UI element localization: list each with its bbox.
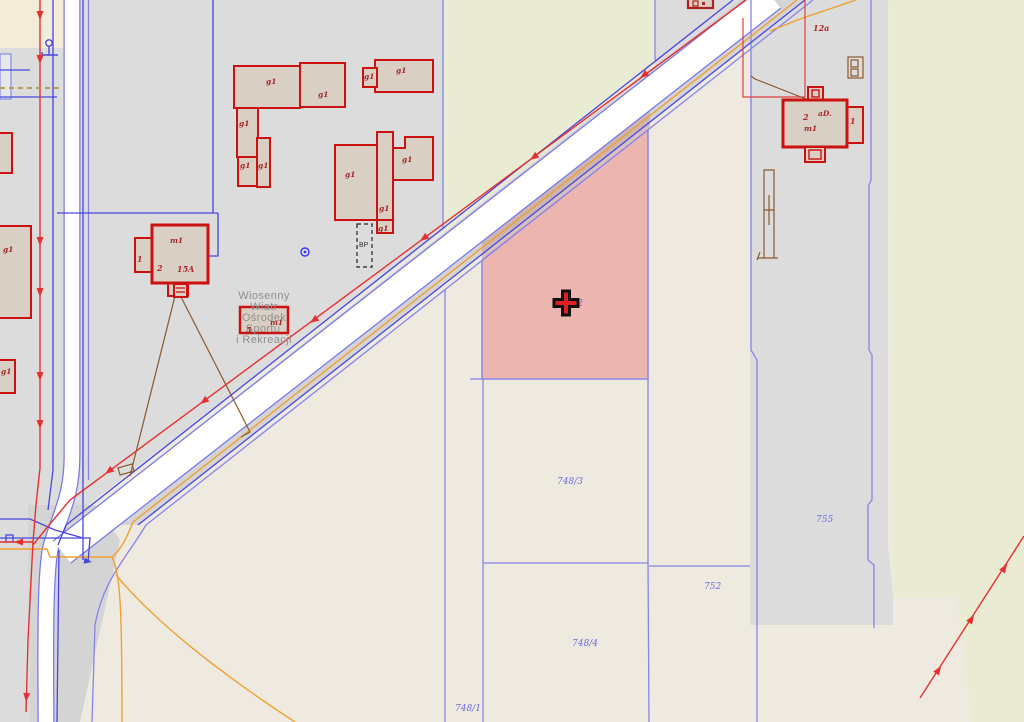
house-number: 1	[137, 254, 143, 264]
building-detail	[809, 150, 821, 159]
building-label: m1	[270, 318, 283, 327]
parcel-label: 748/3	[557, 477, 583, 487]
building-label: g1	[402, 155, 412, 164]
building[interactable]	[0, 226, 31, 318]
building-main[interactable]	[152, 225, 208, 283]
building-label: g1	[318, 90, 328, 99]
parcel-label: 748/1	[455, 704, 481, 714]
building-label: g1	[364, 72, 374, 81]
building-label: g1	[266, 77, 276, 86]
house-number: 5	[246, 325, 252, 335]
cadastral-map-view[interactable]: Wiosenny Wiatr Ośrodek Sportu i Rekreacj…	[0, 0, 1024, 722]
building[interactable]	[335, 145, 378, 220]
building-label: g1	[239, 119, 249, 128]
house-number: 12a	[813, 23, 829, 33]
parcel-label: 752	[704, 582, 721, 592]
house-number: 15A	[177, 264, 194, 274]
house-number: 1	[850, 116, 856, 126]
small-parcel-left-edge	[0, 54, 11, 99]
building[interactable]	[375, 60, 433, 92]
building[interactable]	[0, 360, 15, 393]
house-number: 2	[156, 263, 163, 273]
house-number: 2	[802, 112, 809, 122]
building-outbuilding[interactable]	[174, 284, 187, 297]
building[interactable]	[234, 66, 300, 108]
building-top-edge[interactable]	[688, 0, 713, 8]
building-label: g1	[3, 245, 13, 254]
building-label: g1	[258, 161, 268, 170]
poi-line: i Rekreacji	[236, 334, 292, 346]
building-label: m1	[804, 124, 817, 133]
building-label: BP	[359, 242, 369, 249]
building-label: aD.	[818, 109, 832, 118]
poi-label-osrodek: Wiosenny Wiatr Ośrodek Sportu i Rekreacj…	[236, 290, 292, 346]
building-label: g1	[378, 224, 388, 233]
building-detail	[812, 90, 819, 97]
building-label: m1	[170, 236, 183, 245]
parcel-label: 748/4	[572, 639, 598, 649]
building[interactable]	[300, 63, 345, 107]
building-label: g1	[1, 367, 11, 376]
building-label: g1	[379, 204, 389, 213]
building[interactable]	[0, 133, 12, 173]
parcel-label: 755	[816, 515, 833, 525]
map-canvas[interactable]: Wiosenny Wiatr Ośrodek Sportu i Rekreacj…	[0, 0, 1024, 722]
building[interactable]	[237, 108, 258, 157]
building-label: g1	[396, 66, 406, 75]
building-label: g1	[345, 170, 355, 179]
building-label: g1	[240, 161, 250, 170]
